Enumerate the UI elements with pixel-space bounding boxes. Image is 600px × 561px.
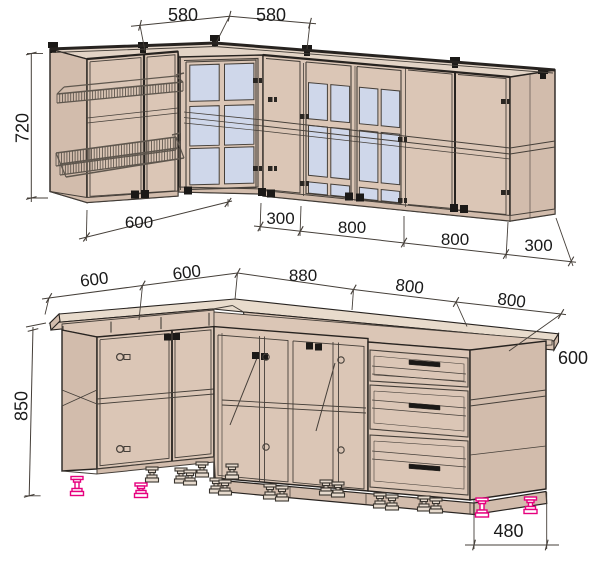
svg-text:600: 600 xyxy=(79,268,109,290)
svg-text:580: 580 xyxy=(168,5,198,25)
svg-text:300: 300 xyxy=(266,209,294,228)
svg-text:600: 600 xyxy=(125,213,153,232)
svg-text:880: 880 xyxy=(289,266,317,285)
svg-text:850: 850 xyxy=(12,391,32,421)
svg-text:600: 600 xyxy=(558,348,588,368)
svg-text:600: 600 xyxy=(172,261,202,283)
svg-text:580: 580 xyxy=(256,5,286,25)
svg-text:480: 480 xyxy=(493,521,523,541)
svg-text:720: 720 xyxy=(13,113,33,143)
svg-text:800: 800 xyxy=(338,218,366,237)
svg-text:800: 800 xyxy=(441,230,469,249)
svg-text:800: 800 xyxy=(496,289,526,311)
svg-text:800: 800 xyxy=(394,275,424,297)
svg-text:300: 300 xyxy=(524,236,552,255)
